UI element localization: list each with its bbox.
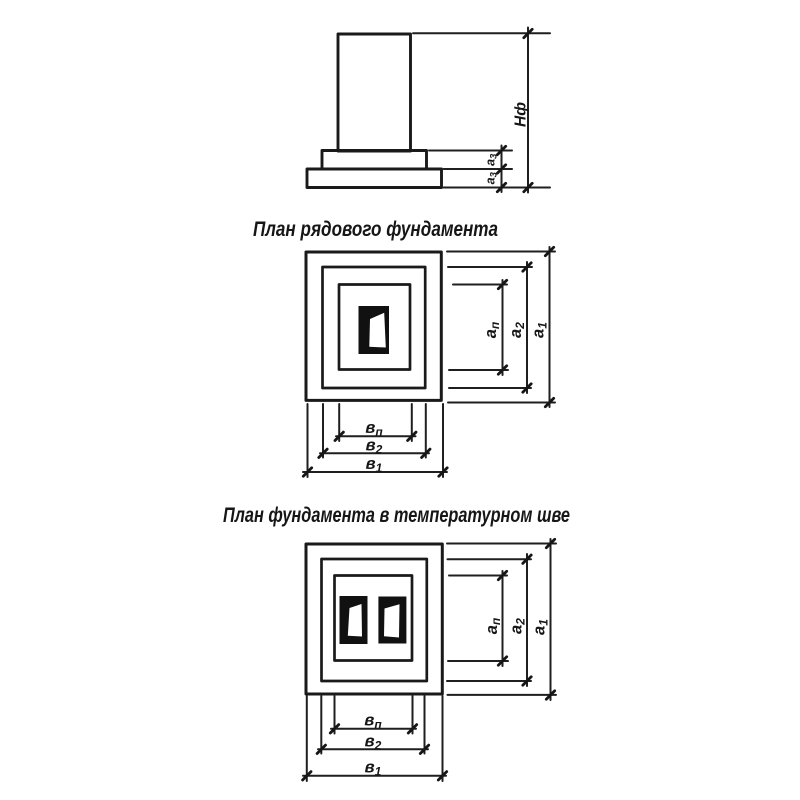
svg-text:План фундамента в температурно: План фундамента в температурном шве xyxy=(223,504,570,527)
svg-text:Нф: Нф xyxy=(513,102,530,127)
svg-text:План рядового фундамента: План рядового фундамента xyxy=(253,218,498,241)
